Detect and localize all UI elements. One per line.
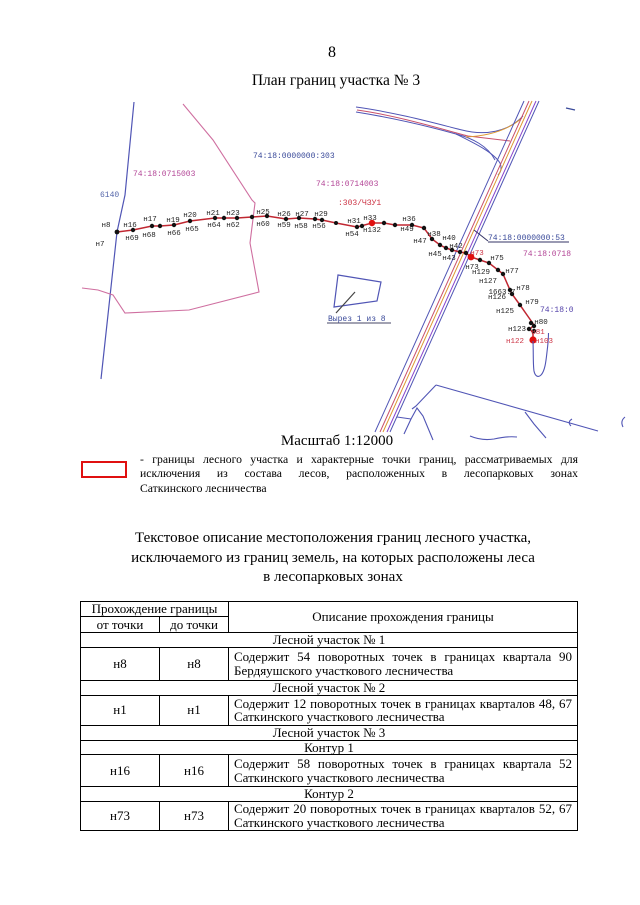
svg-text:н103: н103 <box>535 338 554 346</box>
svg-text:н45: н45 <box>428 251 442 259</box>
svg-text:н123: н123 <box>508 326 527 334</box>
svg-text:н56: н56 <box>312 223 326 231</box>
svg-text:н81: н81 <box>531 329 545 337</box>
svg-text:н43: н43 <box>442 255 456 263</box>
svg-text:74:18:0: 74:18:0 <box>540 306 574 315</box>
svg-text:Вырез 1 из 8: Вырез 1 из 8 <box>328 315 386 324</box>
svg-text:н33: н33 <box>363 215 377 223</box>
svg-text:н8: н8 <box>101 222 110 230</box>
svg-text:74:18:0715003: 74:18:0715003 <box>133 170 196 179</box>
svg-text:н40: н40 <box>442 235 456 243</box>
svg-text:74:18:0000000:303: 74:18:0000000:303 <box>253 152 335 161</box>
svg-text:н16: н16 <box>123 222 137 230</box>
svg-text:н42: н42 <box>449 243 463 251</box>
svg-text:н19: н19 <box>166 217 180 225</box>
svg-text:н73: н73 <box>470 250 484 258</box>
svg-text:74:18:0000000:53: 74:18:0000000:53 <box>488 234 565 243</box>
svg-text:н62: н62 <box>226 222 240 230</box>
svg-text:н23: н23 <box>226 210 240 218</box>
svg-text:н31: н31 <box>347 218 361 226</box>
svg-text:н58: н58 <box>294 223 308 231</box>
svg-text:н7: н7 <box>95 241 104 249</box>
svg-text:н20: н20 <box>183 212 197 220</box>
svg-text:н21: н21 <box>206 210 220 218</box>
svg-text:н49: н49 <box>400 226 414 234</box>
svg-text:74:18:0718: 74:18:0718 <box>523 250 571 259</box>
svg-text:н132: н132 <box>363 227 381 235</box>
svg-text:н29: н29 <box>314 211 328 219</box>
svg-text:н78: н78 <box>516 285 530 293</box>
svg-text:н80: н80 <box>534 319 548 327</box>
svg-text:1663.7: 1663.7 <box>488 289 515 297</box>
svg-text:н54: н54 <box>345 231 359 239</box>
svg-text:н79: н79 <box>525 299 539 307</box>
svg-text:н65: н65 <box>185 226 199 234</box>
svg-text:н66: н66 <box>167 230 181 238</box>
svg-text:н47: н47 <box>413 238 427 246</box>
svg-text:н27: н27 <box>295 211 309 219</box>
svg-text:74:18:0714003: 74:18:0714003 <box>316 180 379 189</box>
svg-text::303/ЧЗУ1: :303/ЧЗУ1 <box>338 199 381 208</box>
svg-text:н69: н69 <box>125 235 139 243</box>
svg-text:н129: н129 <box>472 269 490 277</box>
svg-text:н36: н36 <box>402 216 416 224</box>
svg-text:н77: н77 <box>505 268 519 276</box>
svg-text:н26: н26 <box>277 211 291 219</box>
svg-text:н122: н122 <box>506 338 524 346</box>
svg-text:6140: 6140 <box>100 191 119 200</box>
svg-text:н75: н75 <box>490 255 504 263</box>
svg-text:н60: н60 <box>256 221 270 229</box>
svg-text:н125: н125 <box>496 308 515 316</box>
svg-text:н127: н127 <box>479 278 497 286</box>
svg-text:н68: н68 <box>142 232 156 240</box>
svg-text:н64: н64 <box>207 222 221 230</box>
svg-text:н17: н17 <box>143 216 157 224</box>
svg-text:н59: н59 <box>277 222 291 230</box>
svg-text:н25: н25 <box>256 209 270 217</box>
svg-text:н38: н38 <box>427 231 441 239</box>
